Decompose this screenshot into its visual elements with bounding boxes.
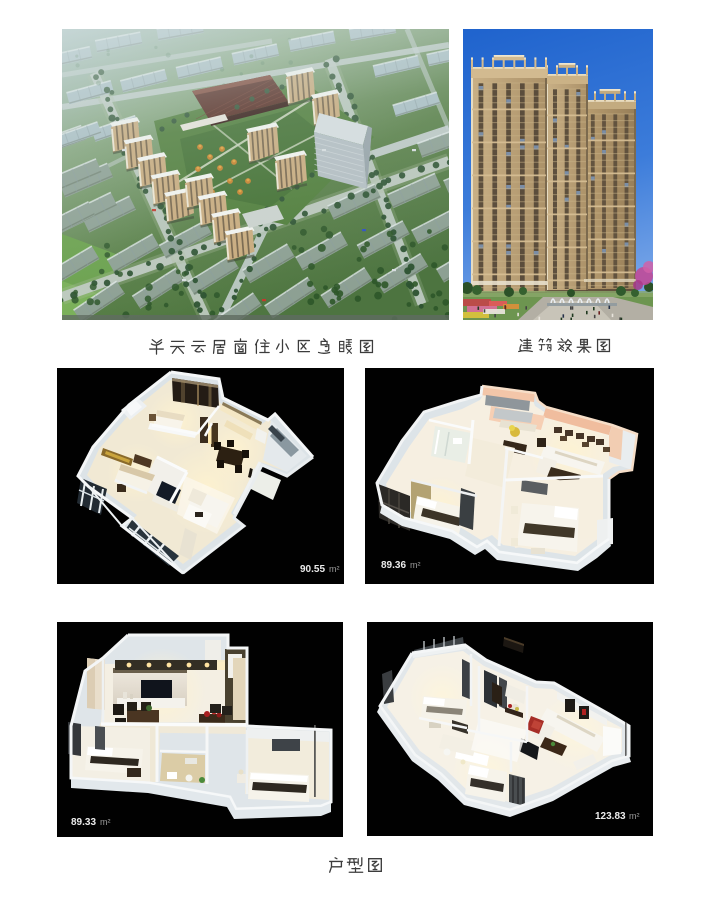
svg-text:89.33: 89.33	[71, 817, 96, 828]
svg-text:m²: m²	[410, 560, 421, 570]
svg-text:m²: m²	[629, 811, 640, 821]
svg-text:123.83: 123.83	[595, 811, 626, 822]
svg-text:89.36: 89.36	[381, 560, 406, 571]
svg-text:90.55: 90.55	[300, 564, 325, 575]
svg-text:m²: m²	[100, 817, 111, 827]
svg-text:m²: m²	[329, 564, 340, 574]
